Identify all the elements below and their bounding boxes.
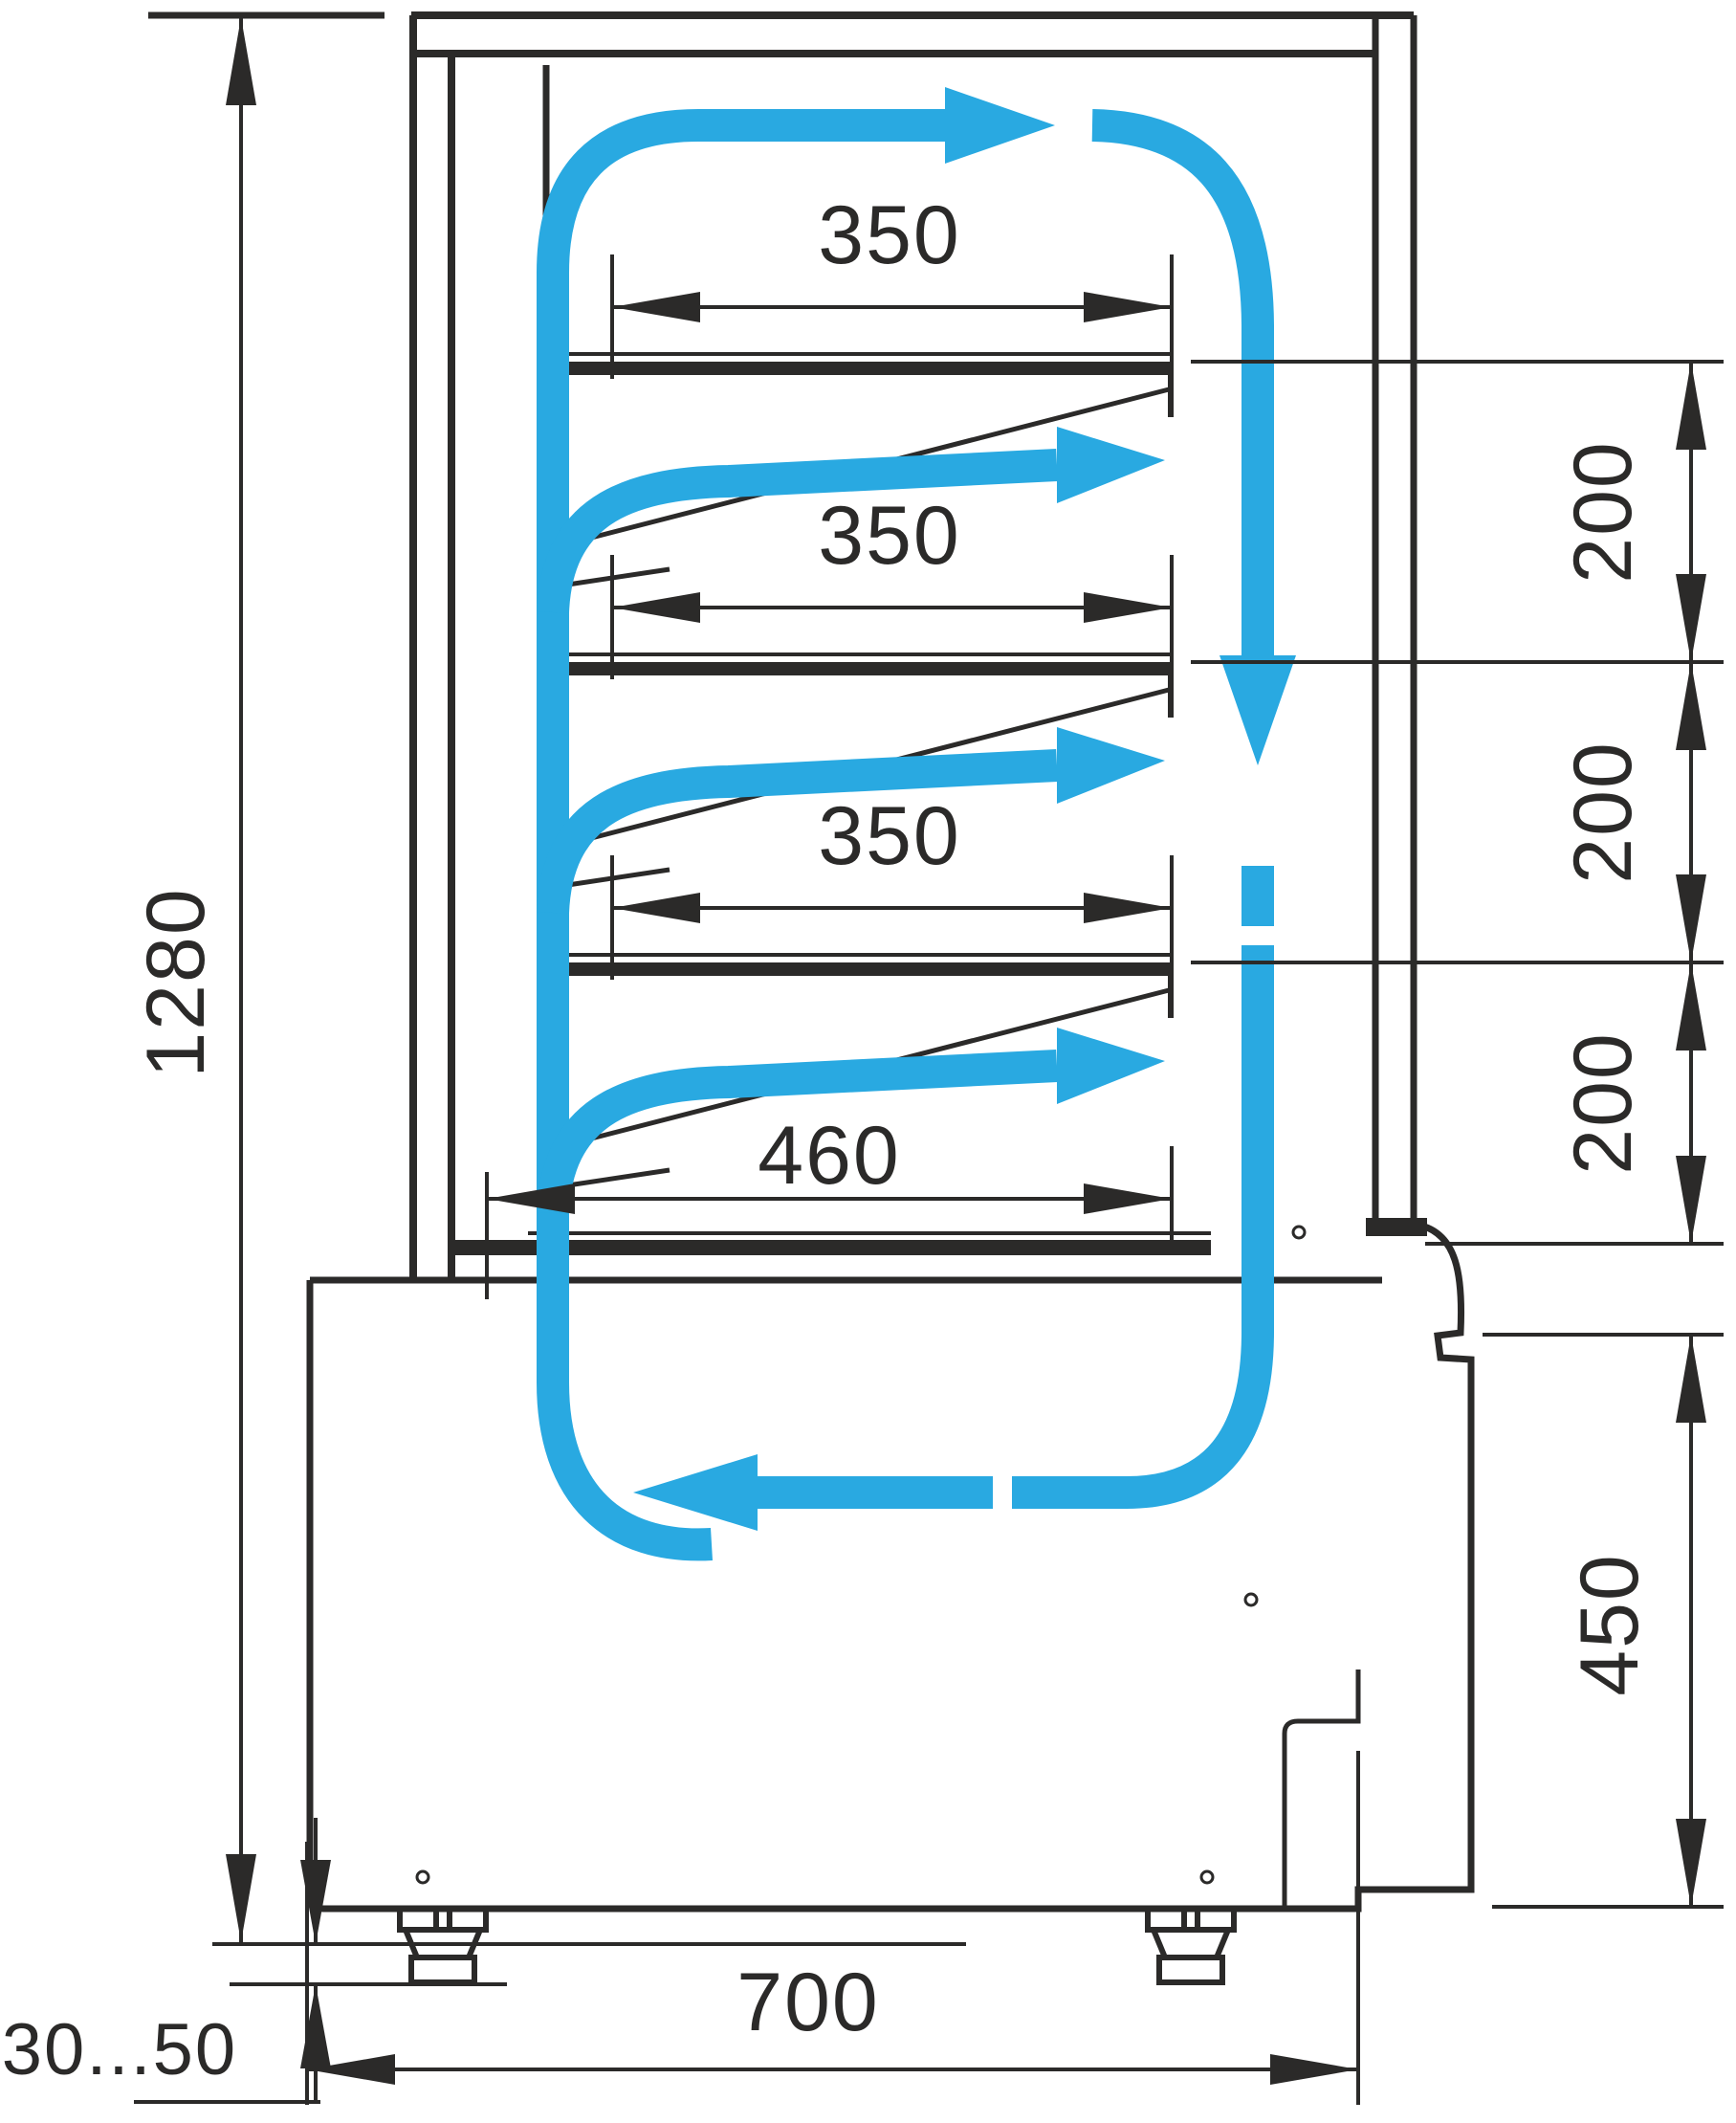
deck-arrow-left-icon <box>487 1183 575 1214</box>
glass-bottom-frame <box>1366 1218 1427 1236</box>
gap-2-arrow-down-icon <box>1676 874 1706 962</box>
airflow-return-arrow-icon <box>633 1454 758 1531</box>
foot-arrow-up-icon <box>300 1984 331 2068</box>
shelf-3-arrow-right-icon <box>1084 893 1172 923</box>
gap-3-arrow-up-icon <box>1676 962 1706 1050</box>
foot-left-pad <box>411 1957 474 1982</box>
shelf-3-arrow-left-icon <box>612 893 700 923</box>
airflow-suction-curve <box>553 1382 712 1544</box>
gap-3-label: 200 <box>1557 1031 1649 1175</box>
base-depth-label: 700 <box>736 1957 880 2048</box>
airflow-top-arrow-icon <box>945 87 1055 164</box>
gap-1-arrow-down-icon <box>1676 574 1706 662</box>
shelf-1-arrow-left-icon <box>612 292 700 322</box>
base-height-label: 450 <box>1564 1553 1656 1696</box>
airflow-return-bend <box>1012 945 1258 1493</box>
shelf-2-duct-slot <box>561 870 670 886</box>
height-label: 1280 <box>130 887 222 1077</box>
base-arrow-down-icon <box>1676 1819 1706 1907</box>
compressor-recess-inner <box>1285 1670 1358 1909</box>
height-arrow-up-icon <box>226 17 256 105</box>
airflow-down-arrow-icon <box>1220 655 1296 765</box>
shelf-2-arrow-left-icon <box>612 592 700 623</box>
shelf-1-arrow-right-icon <box>1084 292 1172 322</box>
screw-dot-bottom-right <box>1201 1871 1213 1883</box>
deck-depth-label: 460 <box>758 1110 901 1202</box>
gap-2-label: 200 <box>1557 741 1649 884</box>
foot-right <box>1148 1909 1234 1982</box>
base-outline <box>310 1226 1471 1909</box>
shelf-3-board <box>546 962 1173 976</box>
foot-arrow-down-icon <box>300 1860 331 1944</box>
dimension-base-height: 450 <box>1483 1335 1724 1907</box>
airflow-shelf-1-branch <box>553 465 1057 612</box>
airflow-front-downflow <box>1092 125 1258 655</box>
gap-1-label: 200 <box>1557 440 1649 584</box>
base-arrow-up-icon <box>1676 1335 1706 1423</box>
shelf-2-depth-label: 350 <box>818 490 961 582</box>
dimension-shelf-depth-1: 350 <box>612 189 1172 379</box>
airflow-shelf-2-arrow-icon <box>1057 727 1165 804</box>
airflow-shelf-2-branch <box>553 765 1057 913</box>
cabinet-structure <box>310 15 1471 1982</box>
shelf-1-depth-label: 350 <box>818 189 961 281</box>
gap-2-arrow-up-icon <box>1676 662 1706 750</box>
dimension-shelf-depth-3: 350 <box>612 790 1172 980</box>
depth-arrow-right-icon <box>1270 2054 1358 2085</box>
shelf-2-arrow-right-icon <box>1084 592 1172 623</box>
gap-1-arrow-up-icon <box>1676 362 1706 450</box>
height-arrow-down-icon <box>226 1854 256 1942</box>
airflow-shelf-1-arrow-icon <box>1057 427 1165 503</box>
shelf-2-board <box>546 662 1173 675</box>
shelf-3-depth-label: 350 <box>818 790 961 882</box>
airflow-shelf-3-arrow-icon <box>1057 1028 1165 1104</box>
display-case-section-drawing: 1280 350 350 350 <box>0 0 1736 2123</box>
shelf-3-duct-slot <box>561 1170 670 1186</box>
foot-right-screw <box>1154 1930 1228 1957</box>
deck-arrow-right-icon <box>1084 1183 1172 1214</box>
dimension-shelf-depth-2: 350 <box>612 490 1172 679</box>
screw-dot-front <box>1293 1227 1305 1238</box>
gap-3-arrow-down-icon <box>1676 1156 1706 1244</box>
shelf-1-board <box>546 362 1173 375</box>
screw-dot-bottom-left <box>417 1871 429 1883</box>
drawing-canvas: 1280 350 350 350 <box>0 0 1736 2123</box>
foot-right-pad <box>1159 1957 1222 1982</box>
foot-adjustment-label: 30...50 <box>2 2009 237 2090</box>
shelf-1-duct-slot <box>561 569 670 586</box>
dimension-overall-height: 1280 <box>130 15 385 1942</box>
dimension-foot-adjustment: 30...50 <box>2 1818 331 2102</box>
screw-dot-side <box>1245 1594 1257 1605</box>
